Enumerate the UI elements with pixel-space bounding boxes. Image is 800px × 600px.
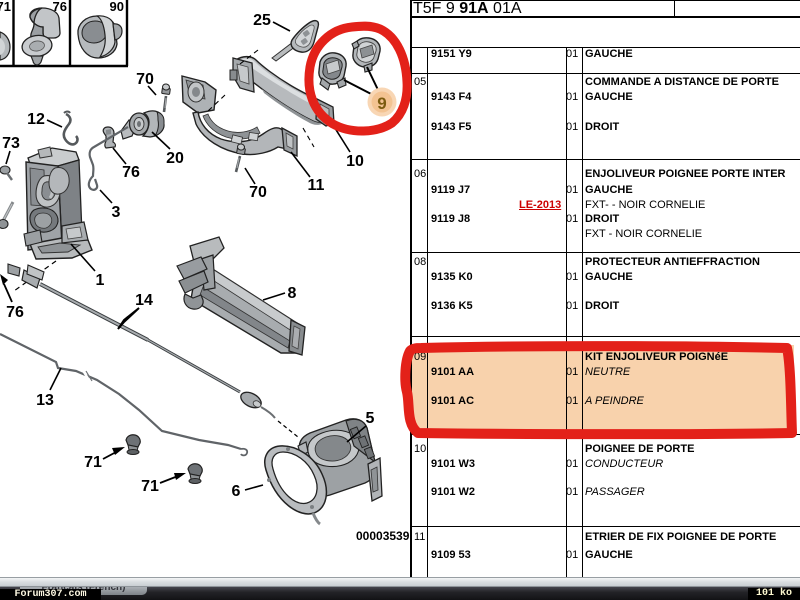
svg-text:76: 76 — [122, 164, 140, 181]
svg-text:8: 8 — [288, 285, 297, 302]
svg-text:71: 71 — [84, 454, 102, 471]
svg-text:6: 6 — [232, 483, 241, 500]
svg-text:14: 14 — [135, 292, 153, 309]
svg-text:11: 11 — [308, 177, 325, 194]
svg-text:76: 76 — [53, 0, 67, 14]
svg-text:5: 5 — [366, 410, 375, 427]
svg-text:71: 71 — [0, 0, 11, 14]
svg-text:3: 3 — [112, 204, 121, 221]
svg-text:71: 71 — [141, 478, 159, 495]
svg-text:13: 13 — [36, 392, 54, 409]
svg-text:10: 10 — [346, 153, 364, 170]
svg-text:9: 9 — [377, 94, 386, 113]
svg-text:25: 25 — [253, 12, 271, 29]
svg-text:70: 70 — [136, 71, 154, 88]
svg-text:70: 70 — [249, 184, 267, 201]
svg-text:12: 12 — [27, 111, 45, 128]
svg-text:90: 90 — [110, 0, 124, 14]
svg-text:1: 1 — [96, 272, 105, 289]
svg-text:76: 76 — [6, 304, 24, 321]
svg-text:73: 73 — [2, 135, 20, 152]
svg-text:20: 20 — [166, 150, 184, 167]
